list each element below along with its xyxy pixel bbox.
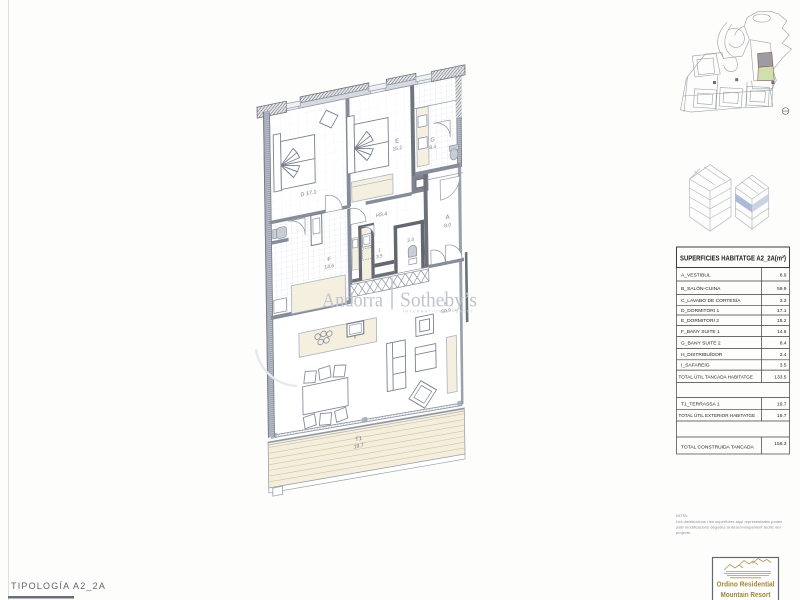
svg-text:I_SAFAREIG: I_SAFAREIG [681, 363, 710, 369]
svg-text:G: G [430, 137, 435, 144]
svg-text:Andorra: Andorra [322, 290, 383, 312]
svg-text:Mountain Resort: Mountain Resort [721, 590, 771, 599]
svg-text:E: E [395, 138, 399, 145]
svg-text:Ordino Residential: Ordino Residential [717, 580, 775, 589]
svg-text:3.3: 3.3 [780, 298, 787, 304]
svg-text:3.5: 3.5 [780, 363, 787, 369]
svg-text:projecte.: projecte. [676, 530, 691, 535]
svg-text:H_DISTRIBUÏDOR: H_DISTRIBUÏDOR [681, 351, 723, 358]
svg-text:T1_TERRASSA 1: T1_TERRASSA 1 [681, 402, 720, 408]
svg-text:14.6: 14.6 [777, 329, 787, 335]
svg-text:A_VESTIBUL: A_VESTIBUL [681, 273, 711, 279]
svg-text:SUPERFICIES HABITATGE A2_2A(m²: SUPERFICIES HABITATGE A2_2A(m²) [680, 254, 786, 263]
svg-text:NOTA:: NOTA: [676, 513, 688, 518]
svg-text:19.7: 19.7 [777, 413, 787, 419]
svg-text:Les distribucions i les superf: Les distribucions i les superfícies aquí… [676, 519, 782, 524]
svg-text:F_BANY SUITE 1: F_BANY SUITE 1 [681, 329, 720, 335]
svg-text:patir modificacions degudes al: patir modificacions degudes al desenvolu… [676, 525, 781, 530]
svg-text:3.4: 3.4 [780, 352, 787, 358]
svg-text:B_SALÓN-CUINA: B_SALÓN-CUINA [681, 285, 721, 292]
svg-text:156.3: 156.3 [774, 441, 787, 447]
svg-text:133.5: 133.5 [774, 375, 787, 381]
svg-text:TIPOLOGÍA A2_2A: TIPOLOGÍA A2_2A [11, 581, 106, 591]
svg-text:D_DORMITORI 1: D_DORMITORI 1 [681, 308, 720, 314]
svg-text:E_DORMITORI 2: E_DORMITORI 2 [681, 318, 719, 324]
svg-text:A: A [446, 214, 450, 221]
svg-text:17.1: 17.1 [777, 308, 787, 314]
svg-text:F: F [327, 257, 331, 264]
svg-text:19.7: 19.7 [777, 402, 787, 408]
svg-text:TOTAL ÚTIL TANCADA HABITATGE: TOTAL ÚTIL TANCADA HABITATGE [679, 374, 753, 380]
svg-text:G_BANY SUITE 2: G_BANY SUITE 2 [681, 341, 721, 347]
svg-text:INTERNATIONAL REALTY: INTERNATIONAL REALTY [403, 309, 474, 314]
svg-text:15.2: 15.2 [777, 318, 787, 324]
svg-text:59.9: 59.9 [777, 286, 787, 292]
svg-text:TOTAL CONSTRUIDA TANCADA: TOTAL CONSTRUIDA TANCADA [681, 445, 755, 451]
svg-text:8.4: 8.4 [780, 341, 787, 347]
svg-text:I: I [378, 248, 380, 254]
svg-text:TOTAL ÚTIL EXTERIOR HABITATGE: TOTAL ÚTIL EXTERIOR HABITATGE [679, 412, 756, 418]
svg-text:C_LAVABO DE CORTESÍA: C_LAVABO DE CORTESÍA [681, 297, 741, 304]
svg-text:8.9: 8.9 [780, 273, 787, 279]
